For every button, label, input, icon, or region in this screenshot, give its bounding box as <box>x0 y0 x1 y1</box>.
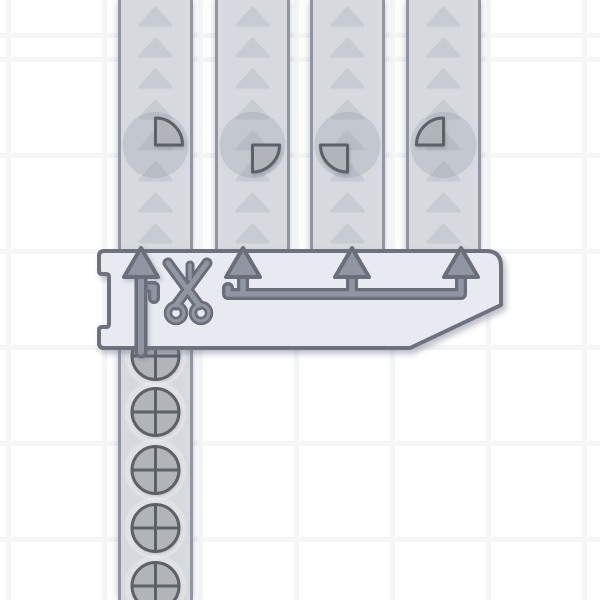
input-arrow-icon <box>0 0 600 600</box>
game-viewport <box>0 0 600 600</box>
output-arrow-icon <box>124 248 158 277</box>
